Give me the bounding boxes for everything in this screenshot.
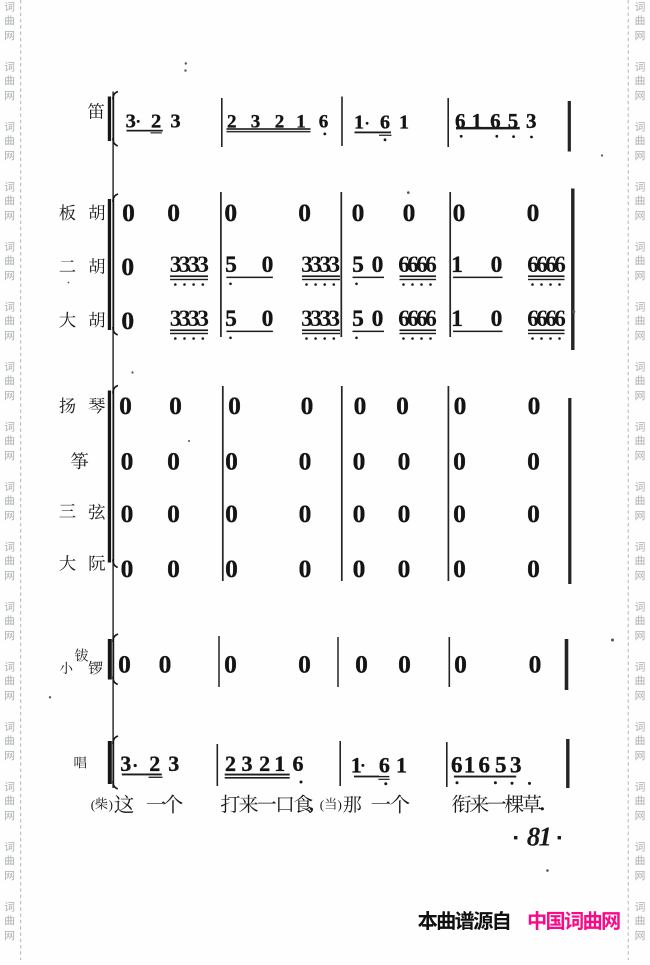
svg-text:5: 5 [495,752,507,777]
svg-text:0: 0 [225,554,238,583]
svg-text:6: 6 [554,252,566,278]
svg-text:2: 2 [151,111,161,133]
svg-text:6: 6 [554,306,566,332]
svg-text:5: 5 [225,306,237,332]
svg-text:0: 0 [453,554,466,583]
svg-text:0: 0 [353,554,366,583]
svg-text:0: 0 [396,391,409,420]
svg-text:1: 1 [274,751,285,776]
svg-text:0: 0 [299,447,312,476]
svg-text:0: 0 [121,499,134,528]
svg-text:0: 0 [352,198,365,227]
svg-text:1: 1 [354,111,364,133]
svg-text:0: 0 [121,306,134,335]
svg-text:0: 0 [228,391,241,420]
svg-text:0: 0 [527,447,540,476]
svg-text:0: 0 [372,252,384,278]
svg-text:0: 0 [169,391,182,420]
svg-text:3: 3 [328,252,340,278]
svg-text:0: 0 [299,499,312,528]
svg-text:6: 6 [425,306,437,332]
svg-text:0: 0 [353,447,366,476]
svg-text:5: 5 [225,252,237,278]
svg-text:0: 0 [454,650,467,679]
svg-text:2: 2 [259,751,270,776]
svg-text:0: 0 [167,447,180,476]
svg-text:3: 3 [197,252,209,278]
svg-text:0: 0 [491,252,503,278]
svg-text:0: 0 [167,499,180,528]
svg-text:0: 0 [121,252,134,281]
svg-text:): ) [109,797,113,812]
svg-text:0: 0 [118,650,131,679]
svg-text:0: 0 [298,650,311,679]
svg-text:1: 1 [399,111,409,133]
svg-text:3: 3 [328,306,340,332]
svg-text:0: 0 [224,198,237,227]
svg-text:6: 6 [451,752,463,777]
svg-text:0: 0 [299,554,312,583]
svg-text:6: 6 [293,751,304,776]
svg-text:0: 0 [298,198,311,227]
svg-text:0: 0 [225,447,238,476]
svg-text:0: 0 [354,391,367,420]
svg-text:0: 0 [528,391,541,420]
svg-text:1: 1 [351,753,362,778]
svg-text:3: 3 [526,109,537,133]
svg-text:0: 0 [372,306,384,332]
svg-text:0: 0 [453,499,466,528]
svg-text:0: 0 [527,554,540,583]
svg-text:1: 1 [451,252,463,278]
svg-text:6: 6 [319,111,329,132]
svg-text:0: 0 [122,198,135,227]
svg-text:3: 3 [510,752,522,777]
svg-text:(: ( [320,797,324,812]
svg-text:0: 0 [398,499,411,528]
svg-text:6: 6 [478,752,490,777]
svg-text:(: ( [91,797,95,812]
svg-text:5: 5 [352,252,364,278]
svg-text:0: 0 [121,554,134,583]
svg-text:0: 0 [529,650,542,679]
svg-text:0: 0 [353,499,366,528]
svg-text:3: 3 [168,751,179,776]
svg-text:0: 0 [398,447,411,476]
svg-text:6: 6 [425,252,437,278]
svg-text:2: 2 [225,751,236,776]
svg-text:0: 0 [453,447,466,476]
svg-text:0: 0 [398,554,411,583]
svg-text:3: 3 [120,751,131,776]
svg-text:0: 0 [398,650,411,679]
svg-text:1: 1 [464,752,476,777]
svg-text:1: 1 [451,306,463,332]
svg-text:3: 3 [242,751,253,776]
svg-text:): ) [338,797,342,812]
svg-text:0: 0 [224,650,237,679]
svg-text:0: 0 [121,447,134,476]
svg-text:5: 5 [352,306,364,332]
svg-text:0: 0 [262,306,274,332]
svg-text:0: 0 [527,499,540,528]
svg-text:3: 3 [170,111,180,133]
svg-text:0: 0 [403,198,416,227]
svg-text:0: 0 [159,650,172,679]
svg-text:6: 6 [380,111,390,133]
svg-text:1: 1 [396,753,407,778]
svg-text:0: 0 [453,198,466,227]
svg-text:,: , [309,795,314,816]
svg-text:6: 6 [379,753,390,778]
svg-text:0: 0 [491,306,503,332]
svg-text:0: 0 [119,391,132,420]
svg-text:0: 0 [301,391,314,420]
svg-text:0: 0 [527,198,540,227]
svg-text:0: 0 [262,252,274,278]
svg-text:0: 0 [225,499,238,528]
svg-text:3: 3 [197,306,209,332]
svg-text:0: 0 [355,650,368,679]
svg-text:2: 2 [149,751,160,776]
svg-text:3: 3 [126,111,136,133]
svg-text:0: 0 [167,554,180,583]
svg-text:0: 0 [454,391,467,420]
svg-text:0: 0 [167,198,180,227]
svg-text:1: 1 [538,822,552,852]
